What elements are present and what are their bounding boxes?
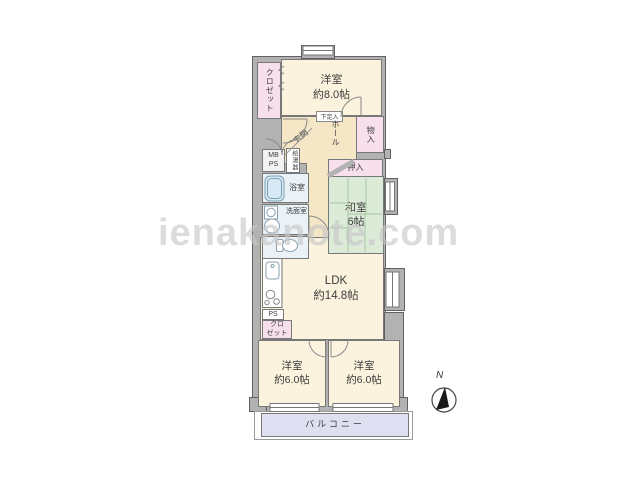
closet-top-label: クロゼット bbox=[264, 68, 274, 113]
pipe-space-box: PS bbox=[262, 309, 284, 320]
floor-plan-canvas: クロゼット 洋室 約8.0帖 物入 LDK 約14.8帖 押入 和室 6帖 MB… bbox=[0, 0, 640, 480]
room-bedroom-right: 洋室 約6.0帖 bbox=[328, 340, 400, 407]
closet-top-left: クロゼット bbox=[257, 62, 281, 119]
room-bedroom-left: 洋室 約6.0帖 bbox=[258, 340, 326, 407]
closet-oshiire: 押入 bbox=[328, 159, 383, 177]
compass-north-label: N bbox=[436, 370, 443, 381]
ps-meter-label: PS bbox=[268, 161, 279, 169]
right-wall-step bbox=[384, 149, 391, 159]
bathroom-label: 浴室 bbox=[289, 183, 305, 193]
bedroom-left-size: 約6.0帖 bbox=[274, 374, 310, 388]
bedroom-left-name: 洋室 bbox=[274, 360, 310, 374]
ps-label: PS bbox=[268, 310, 277, 319]
washitsu-window-bay-wall bbox=[384, 178, 398, 215]
bedroom-top-size: 約8.0帖 bbox=[313, 88, 350, 102]
ldk-name: LDK bbox=[313, 274, 358, 289]
water-heater-label: 給湯器 bbox=[289, 150, 297, 171]
top-window-bay-wall bbox=[301, 45, 335, 59]
monoire-label: 物入 bbox=[365, 126, 375, 144]
closet-ldk: クロ ゼット bbox=[262, 320, 292, 339]
mb-label: MB bbox=[268, 152, 279, 160]
oshiire-label: 押入 bbox=[348, 163, 364, 173]
ldk-size: 約14.8帖 bbox=[313, 289, 358, 304]
room-bedroom-top: 洋室 約8.0帖 bbox=[281, 59, 382, 116]
bedroom-right-name: 洋室 bbox=[346, 360, 382, 374]
watermark-text: ienakanote.com bbox=[158, 212, 459, 255]
balcony: バルコニー bbox=[261, 413, 409, 437]
balcony-label: バルコニー bbox=[305, 419, 365, 431]
ldk-window-bay-wall bbox=[384, 268, 405, 311]
water-heater-box: 給湯器 bbox=[286, 148, 300, 173]
storage-monoire: 物入 bbox=[356, 116, 384, 153]
bedroom-right-size: 約6.0帖 bbox=[346, 374, 382, 388]
bedroom-top-name: 洋室 bbox=[313, 73, 350, 87]
closet-ldk-line2: ゼット bbox=[267, 330, 288, 338]
room-bathroom: 浴室 bbox=[262, 173, 309, 203]
meter-box-pipe-space: MB PS bbox=[262, 149, 285, 172]
closet-ldk-line1: クロ bbox=[267, 321, 288, 329]
hall-label: ホール bbox=[330, 120, 341, 147]
compass-icon bbox=[432, 387, 456, 412]
